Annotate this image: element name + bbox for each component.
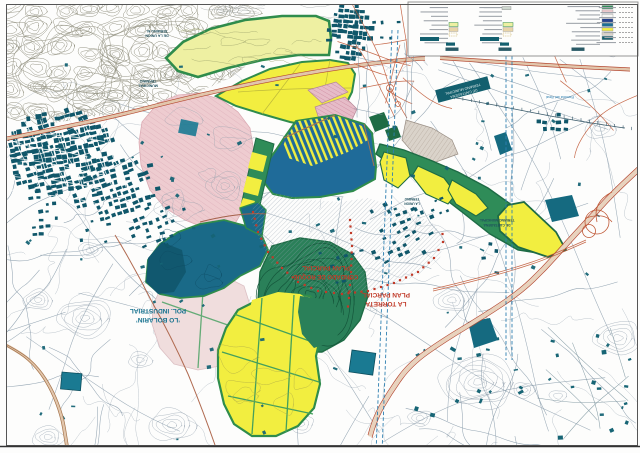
- svg-text:TERMINO: TERMINO: [140, 79, 157, 83]
- svg-text:MUNICIPAL: MUNICIPAL: [137, 84, 158, 88]
- svg-text:TERMINO MUNICIPAL: TERMINO MUNICIPAL: [479, 218, 514, 222]
- svg-text:PLAN PARCIAL: PLAN PARCIAL: [362, 291, 410, 298]
- svg-text:‘LO BOLARIN’: ‘LO BOLARIN’: [136, 316, 180, 323]
- svg-text:DE CARTAGENA: DE CARTAGENA: [483, 223, 511, 227]
- svg-text:Rambla del Beal: Rambla del Beal: [546, 95, 574, 99]
- svg-text:DE LA UNION: DE LA UNION: [145, 34, 169, 38]
- svg-text:LA UNION: LA UNION: [404, 202, 420, 206]
- svg-text:PLAN PARCIAL: PLAN PARCIAL: [302, 264, 350, 271]
- svg-text:LA TORRETA: LA TORRETA: [365, 300, 406, 307]
- svg-text:TERMINO M.: TERMINO M.: [146, 29, 168, 33]
- svg-text:POL. INDUSTRIAL: POL. INDUSTRIAL: [130, 307, 186, 314]
- svg-text:TERMINO: TERMINO: [404, 197, 419, 201]
- svg-text:CONDADO DE ROQUE: CONDADO DE ROQUE: [294, 273, 359, 279]
